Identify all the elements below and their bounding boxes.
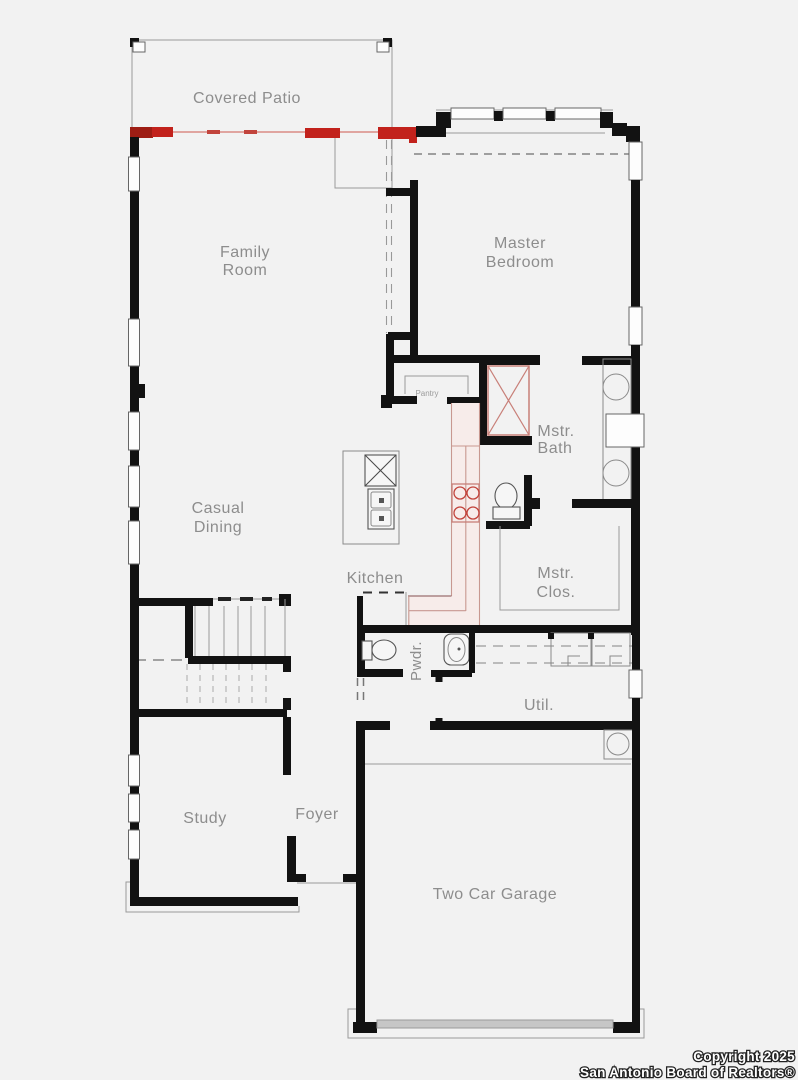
svg-text:Copyright 2025: Copyright 2025 — [693, 1049, 795, 1064]
svg-text:Kitchen: Kitchen — [347, 570, 404, 587]
svg-text:Family: Family — [220, 244, 270, 261]
svg-text:Two Car Garage: Two Car Garage — [433, 886, 557, 903]
svg-text:Mstr.: Mstr. — [537, 423, 574, 440]
svg-text:Dining: Dining — [194, 519, 242, 536]
svg-text:Pwdr.: Pwdr. — [408, 641, 425, 681]
svg-text:San Antonio Board of Realtors®: San Antonio Board of Realtors® — [580, 1065, 795, 1080]
svg-text:Room: Room — [223, 262, 268, 279]
svg-text:Covered Patio: Covered Patio — [193, 90, 301, 107]
svg-text:Study: Study — [183, 810, 226, 827]
svg-text:Bedroom: Bedroom — [486, 254, 554, 271]
svg-text:Pantry: Pantry — [415, 389, 438, 398]
svg-text:Bath: Bath — [538, 440, 573, 457]
svg-text:Util.: Util. — [524, 697, 554, 714]
svg-text:Foyer: Foyer — [295, 806, 339, 823]
svg-text:Master: Master — [494, 235, 546, 252]
svg-text:Clos.: Clos. — [537, 584, 576, 601]
svg-text:Casual: Casual — [192, 500, 245, 517]
svg-text:Mstr.: Mstr. — [537, 565, 574, 582]
